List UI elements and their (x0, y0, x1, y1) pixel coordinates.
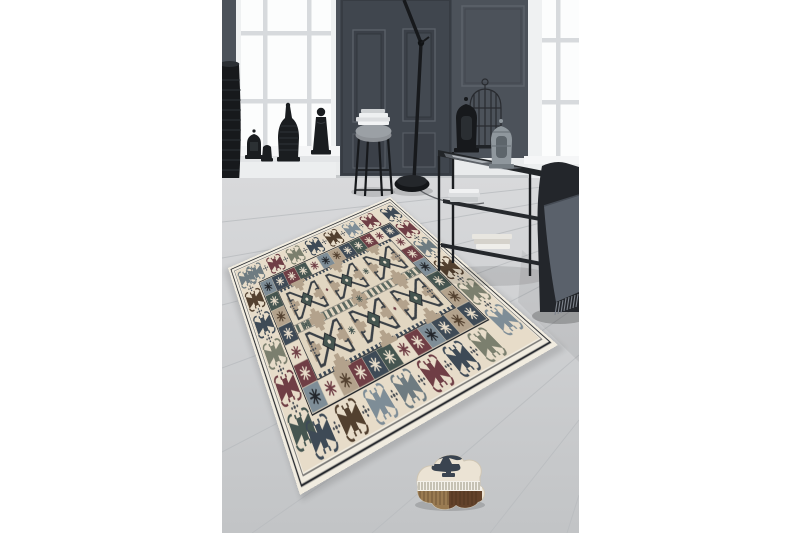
console-books-mid (448, 189, 480, 202)
folded-rug-piece (415, 450, 485, 513)
room-scene-front (222, 0, 579, 533)
product-photo-page (0, 0, 800, 533)
console-lantern-black (454, 97, 479, 153)
console-books-lower (472, 234, 512, 249)
room-photo (222, 0, 579, 533)
